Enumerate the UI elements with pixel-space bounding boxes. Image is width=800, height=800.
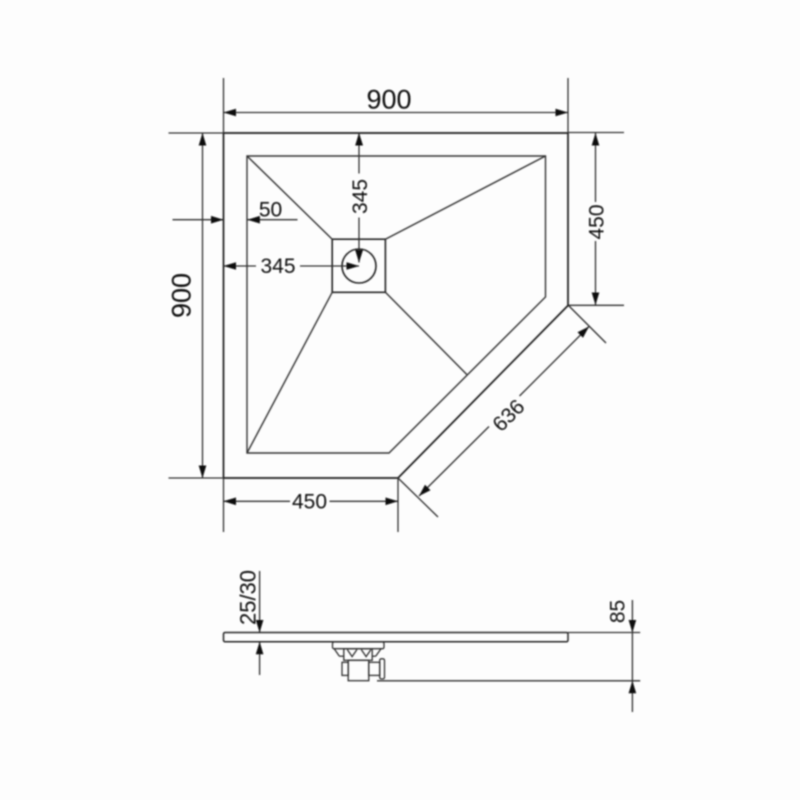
svg-text:345: 345 <box>349 179 372 214</box>
svg-text:345: 345 <box>260 255 295 278</box>
svg-text:450: 450 <box>586 204 609 239</box>
svg-text:450: 450 <box>292 491 327 514</box>
svg-text:50: 50 <box>259 199 282 222</box>
svg-text:900: 900 <box>167 273 197 318</box>
svg-text:636: 636 <box>488 395 529 436</box>
svg-text:25/30: 25/30 <box>236 570 261 625</box>
svg-text:900: 900 <box>366 85 411 115</box>
svg-text:85: 85 <box>607 600 630 623</box>
